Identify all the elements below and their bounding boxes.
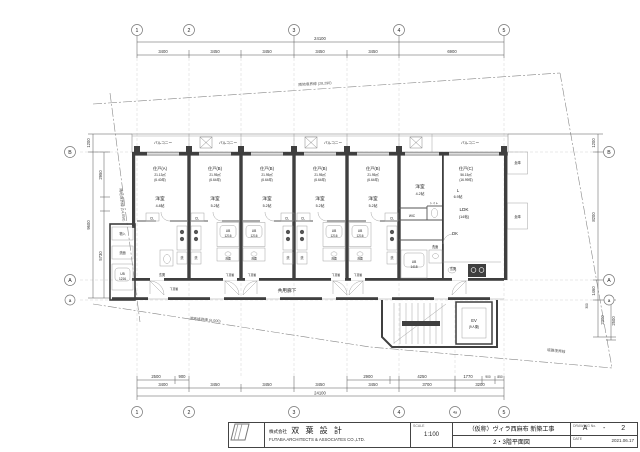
fixture-label: 洗面 — [432, 244, 438, 249]
fixture-label: 洗 — [286, 255, 290, 260]
room-size: 5.2帖 — [263, 203, 272, 208]
project-title: （仮称）ヴィラ西麻布 新築工事 — [453, 423, 570, 436]
dimensions-top: 24100 3400 3450 3450 3450 3450 6900 — [137, 36, 504, 58]
dim-label: 2900 — [363, 374, 373, 379]
grid-bubble-label: 2 — [188, 28, 191, 34]
unit-name: 住戸(B) — [313, 165, 328, 172]
room-size: (14帖) — [459, 214, 469, 219]
unit-name: 住戸(A) — [153, 165, 168, 172]
unit-name: 住戸(B) — [260, 165, 275, 172]
fixture-label: 下足箱 — [248, 273, 257, 277]
dim-label: 900 — [485, 375, 491, 379]
room-label: 洋室 — [315, 195, 325, 202]
unit-area: 21.13㎡ — [154, 172, 166, 177]
fixture-label: 1216 — [224, 234, 231, 238]
fixture-label: 倉庫 — [514, 160, 521, 165]
fixture-label: WIC — [409, 214, 416, 218]
fixture-label: CL — [285, 217, 289, 221]
fixture-label: CL — [195, 217, 199, 221]
unit-name: 住戸(B) — [366, 165, 381, 172]
fixture-label: CL — [301, 217, 305, 221]
dim-label: 1770 — [463, 374, 473, 379]
dim-label: 8200 — [591, 212, 596, 222]
dim-label: 850 — [497, 375, 503, 379]
dim-bottom-total: 24100 — [314, 391, 326, 396]
dimensions-bottom: 2500 900 2900 4250 1770 900 850 3400 345… — [137, 374, 504, 400]
number-box: DRAWING No. A - 2 DATE 2021.06.17 — [571, 423, 637, 447]
boundary-label-bottom: 道路境界線 (6,000) — [189, 316, 220, 324]
fixture-label: 洗面 — [331, 257, 337, 261]
unit-tsubo: (6.40坪) — [154, 177, 166, 182]
fixture-label: 洗 — [180, 255, 184, 260]
unit-labels: 住戸(A) 21.13㎡ (6.40坪) 洋室 4.8帖 住戸(B) 21.95… — [153, 165, 474, 236]
room-label: 洋室 — [262, 195, 272, 202]
room-label: 洋室 — [368, 195, 378, 202]
grid-bubble-label: B — [607, 150, 611, 156]
dim-label: 9600 — [86, 220, 91, 230]
scale-label: SCALE — [413, 424, 424, 428]
fixture-label: UB — [226, 229, 230, 233]
dim-label: 300 — [585, 303, 589, 309]
company-name-jp: 株式会社 双 葉 設 計 — [269, 425, 406, 436]
dim-label: 2300 — [600, 315, 605, 325]
room-label: LDK — [459, 207, 469, 212]
grid-bubble-label: A — [607, 278, 611, 284]
unit-area: 21.95㎡ — [209, 172, 221, 177]
grid-bubbles-bottom: 1 2 3 4 4a 5 — [132, 407, 510, 418]
dim-label: 6900 — [447, 49, 457, 54]
dim-label: 3200 — [475, 382, 485, 387]
dim-label: 1200 — [591, 138, 596, 148]
grid-bubble-label: 3 — [293, 410, 296, 416]
grid-bubble-label: a — [608, 298, 611, 303]
fixture-label: CL — [390, 217, 394, 221]
company-box: 株式会社 双 葉 設 計 FUTABA ARCHITECTS & ASSOCIA… — [265, 423, 411, 447]
stair-elevator-block: EV (9人乗) — [382, 300, 497, 347]
site-boundary-lines — [93, 73, 612, 368]
dim-label: 3450 — [368, 382, 378, 387]
unit-tsubo: (6.64坪) — [367, 177, 379, 182]
grid-bubble-label: 4 — [398, 28, 401, 34]
fixture-label: UB — [332, 229, 336, 233]
unit-tsubo: (6.64坪) — [314, 177, 326, 182]
fixture-label: 洗 — [300, 255, 304, 260]
fixture-label: 1216 — [356, 234, 363, 238]
fixture-label: トイレ — [430, 201, 439, 205]
fixture-label: UB — [120, 272, 124, 276]
dimensions-right: 1200 8200 1460 300 2300 2500 — [508, 134, 616, 340]
boundary-label-top: 隣地境界線 (28,290) — [298, 80, 331, 87]
unit-area: 21.95㎡ — [367, 172, 379, 177]
grid-bubble-label: 3 — [293, 28, 296, 34]
room-label: 洋室 — [155, 195, 165, 202]
dim-label: 3450 — [210, 49, 220, 54]
fixture-label: 洗面 — [119, 250, 125, 255]
unit-area: 21.95㎡ — [261, 172, 273, 177]
room-label: DK — [452, 231, 458, 236]
elevator-capacity-label: (9人乗) — [469, 324, 479, 329]
grid-bubble-label: 5 — [503, 28, 506, 34]
scale-value: 1:100 — [411, 432, 452, 438]
company-prefix: 株式会社 — [269, 429, 287, 434]
unit-name: 住戸(C) — [459, 165, 474, 172]
dim-top-total: 24100 — [314, 36, 326, 41]
fixture-label: 下足箱 — [170, 287, 179, 291]
date-value: 2021.06.17 — [611, 438, 634, 443]
unit-name: 住戸(B) — [208, 165, 223, 172]
dim-label: 3450 — [262, 49, 272, 54]
corridor-label: 共用廊下 — [278, 287, 297, 294]
balcony-label: バルコニー — [324, 140, 343, 145]
dim-label: 3450 — [315, 382, 325, 387]
fixture-label: 洗面 — [225, 257, 231, 261]
fixture-label: 洗 — [390, 255, 394, 260]
room-size: 5.2帖 — [369, 203, 378, 208]
site-boundary-labels: 隣地境界線 (28,290) 隣地境界線 (14,050) 道路境界線 (6,0… — [118, 80, 566, 354]
balcony-label: バルコニー — [461, 140, 480, 145]
project-box: （仮称）ヴィラ西麻布 新築工事 2・3階平面図 — [453, 423, 571, 447]
fixture-label: 1418 — [410, 265, 417, 269]
room-label: 洋室 — [210, 195, 220, 202]
dim-label: 4250 — [417, 374, 427, 379]
logo-mark-icon — [229, 423, 251, 441]
fixture-label: 物入 — [119, 231, 126, 236]
fixture-label: 玄関 — [450, 266, 456, 271]
grid-lines — [80, 58, 600, 378]
dim-label: 3400 — [158, 49, 168, 54]
sheet-title: 2・3階平面図 — [453, 436, 570, 448]
dim-label: 3450 — [368, 49, 378, 54]
dim-label: 2950 — [98, 170, 103, 180]
balcony-label: バルコニー — [219, 140, 238, 145]
grid-bubbles-top: 1 2 3 4 5 — [132, 25, 510, 36]
unit-tsubo: (6.64坪) — [209, 177, 221, 182]
dim-label: 2500 — [611, 316, 616, 326]
fixture-label: 1216 — [330, 234, 337, 238]
room-size: 5.2帖 — [211, 203, 220, 208]
fixture-label: CL — [150, 217, 154, 221]
room-size: 4.8帖 — [156, 203, 165, 208]
fixture-label: 下足箱 — [332, 273, 341, 277]
room-label: 洋室 — [415, 183, 425, 190]
fixture-label: 下足箱 — [354, 273, 363, 277]
grid-bubbles-right: B A a — [604, 147, 615, 306]
dim-label: 3450 — [262, 382, 272, 387]
fixture-label: 倉庫 — [514, 214, 521, 219]
dim-label: 1200 — [86, 138, 91, 148]
dim-label: 1460 — [591, 286, 596, 296]
room-size: 5.2帖 — [316, 203, 325, 208]
grid-bubble-label: 4 — [398, 410, 401, 416]
fixture-label: 下足箱 — [226, 273, 235, 277]
fixture-label: 洗面 — [251, 257, 257, 261]
unit-tsubo: (6.64坪) — [261, 177, 273, 182]
fixture-label: 洗面 — [357, 257, 363, 261]
company-logo — [229, 423, 265, 447]
grid-bubble-label: 1 — [136, 410, 139, 416]
boundary-label-left: 隣地境界線 (14,050) — [118, 188, 126, 222]
dim-label: 5730 — [98, 251, 103, 261]
fixture-label: 玄関 — [159, 272, 165, 277]
grid-bubble-label: 1 — [136, 28, 139, 34]
drawing-sheet: 隣地境界線 (28,290) 隣地境界線 (14,050) 道路境界線 (6,0… — [0, 0, 640, 452]
date-row: DATE 2021.06.17 — [571, 436, 637, 448]
fixture-label: UB — [412, 260, 416, 264]
drawing-number-value: A - 2 — [571, 425, 637, 432]
grid-bubble-label: a — [69, 298, 72, 303]
scale-box: SCALE 1:100 — [411, 423, 453, 447]
dim-label: 3450 — [210, 382, 220, 387]
dim-label: 3400 — [158, 382, 168, 387]
dim-label: 3700 — [422, 382, 432, 387]
fixture-label: 1216 — [250, 234, 257, 238]
unit-tsubo: (16.99坪) — [459, 177, 472, 182]
unit-area: 56.15㎡ — [460, 172, 472, 177]
boundary-label-bottom-right: 道路境界線 — [547, 347, 566, 354]
room-size: 6.9帖 — [454, 194, 463, 199]
dim-label: 900 — [179, 374, 187, 379]
company-name-en: FUTABA ARCHITECTS & ASSOCIATES CO.,LTD. — [269, 437, 406, 442]
dim-label: 3450 — [315, 49, 325, 54]
grid-bubble-label: B — [68, 150, 72, 156]
fixture-label: 1216 — [119, 277, 126, 281]
balcony-label: バルコニー — [154, 140, 173, 145]
fixture-label: UB — [358, 229, 362, 233]
elevator-label: EV — [471, 318, 477, 323]
grid-bubble-label: 2 — [188, 410, 191, 416]
room-label: L — [457, 188, 460, 193]
unit-area: 21.95㎡ — [314, 172, 326, 177]
title-block: 株式会社 双 葉 設 計 FUTABA ARCHITECTS & ASSOCIA… — [228, 422, 638, 448]
fixture-label: 洗 — [194, 255, 198, 260]
fixture-label: UB — [252, 229, 256, 233]
grid-bubble-label: 5 — [503, 410, 506, 416]
room-size: 4.2帖 — [416, 191, 425, 196]
grid-bubble-label: A — [68, 278, 72, 284]
dim-label: 2500 — [151, 374, 161, 379]
floor-plan-svg: 隣地境界線 (28,290) 隣地境界線 (14,050) 道路境界線 (6,0… — [0, 0, 640, 452]
drawing-number-row: DRAWING No. A - 2 — [571, 423, 637, 436]
grid-bubbles-left: B A a — [65, 147, 76, 306]
date-label: DATE — [573, 437, 582, 441]
